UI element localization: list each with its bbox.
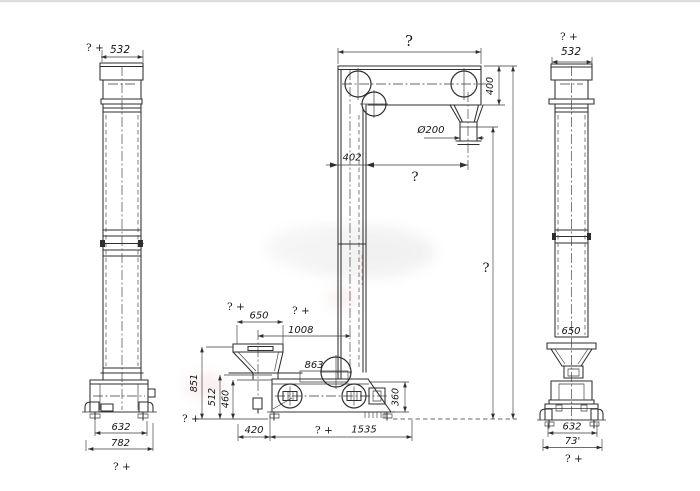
right-side-view: ? + 532 650 632 73' ? +	[537, 31, 606, 465]
joint-bolt	[100, 240, 105, 247]
dim-420: 420	[244, 425, 263, 436]
left-bottom-note: ? +	[113, 461, 131, 473]
joint-bolt	[552, 233, 556, 240]
arrowhead	[460, 162, 468, 167]
dim-650: 650	[249, 311, 268, 322]
head-axis-centerline	[342, 70, 486, 378]
dim-1535: 1535	[351, 425, 376, 436]
dim-right-532: 532	[561, 46, 581, 58]
dim-elevator-height: ?	[483, 261, 490, 276]
dim-863: 863	[304, 360, 323, 371]
arrowhead	[366, 162, 374, 167]
right-top-note: ? +	[560, 31, 578, 43]
arrowhead	[330, 162, 338, 167]
dim-left-top-prefix: ? +	[86, 42, 104, 54]
dim-right-632: 632	[562, 422, 581, 433]
dim-1535-prefix: ? +	[315, 425, 333, 437]
dim-right-73: 73'	[565, 436, 580, 447]
left-column-outline	[85, 63, 155, 420]
left-column-details	[82, 384, 157, 418]
dim-dia200: Ø200	[417, 124, 445, 136]
right-bottom-note: ? +	[565, 453, 583, 465]
joint-bolt	[138, 240, 143, 247]
dim-1008-prefix: ? +	[292, 305, 310, 317]
left-side-view: ? + 532 632 782 ? +	[82, 42, 157, 473]
dim-head-width: ?	[405, 34, 413, 50]
dim-360: 360	[391, 388, 402, 406]
dim-right-650: 650	[561, 326, 580, 337]
dim-discharge-offset: ?	[412, 170, 419, 185]
head-and-leg-outline	[338, 66, 483, 379]
head-crosshairs	[358, 68, 464, 118]
bucket-elevator-technical-drawing: ? + 532 632 782 ? +	[0, 0, 700, 491]
dim-460: 460	[221, 390, 232, 408]
dim-left-782: 782	[111, 438, 130, 449]
dim-left-top-value: 532	[110, 44, 130, 56]
dim-512: 512	[207, 388, 218, 406]
dim-650-prefix: ? +	[227, 301, 245, 313]
scan-edge-strip	[0, 0, 700, 2]
dim-400: 400	[485, 77, 496, 95]
watermark-haze	[185, 226, 435, 399]
dim-left-632: 632	[111, 422, 130, 433]
joint-bolt	[587, 233, 591, 240]
dim-1008: 1008	[288, 325, 313, 336]
dim-402: 402	[342, 153, 361, 164]
left-column-centerlines	[93, 66, 145, 410]
ground-note: ? +	[182, 413, 200, 425]
dim-851: 851	[189, 374, 200, 392]
drawing-canvas: ? + 532 632 782 ? +	[0, 0, 700, 491]
